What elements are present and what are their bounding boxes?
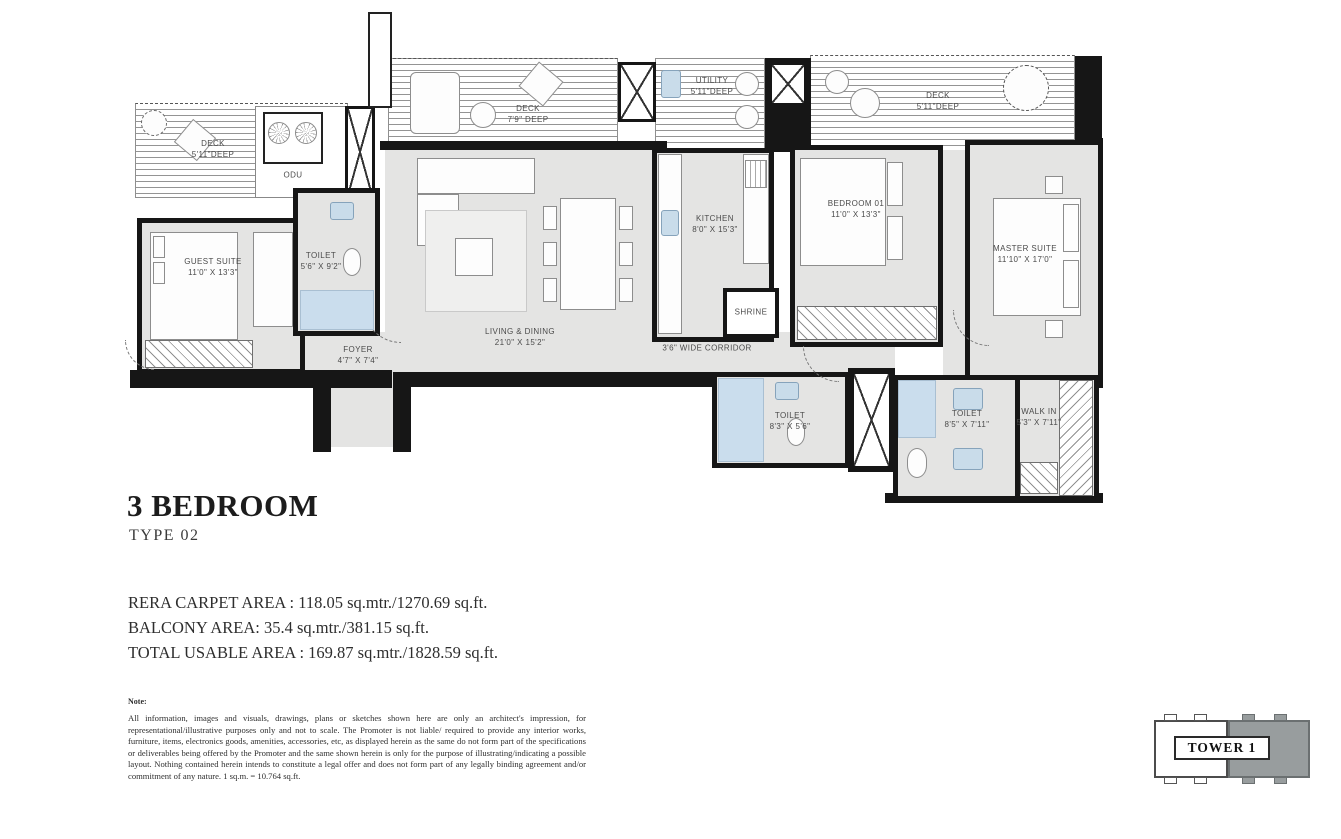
room-label-corridor: 3'6" WIDE CORRIDOR: [662, 344, 751, 355]
duct-projection: [368, 12, 392, 108]
room-label-toilet-master: TOILET8'5" X 7'11": [945, 409, 990, 431]
room-label-kitchen: KITCHEN8'0" X 15'3": [692, 214, 738, 236]
room-label-shrine: SHRINE: [735, 308, 768, 319]
plant-icon: [141, 110, 167, 136]
chair-icon: [619, 278, 633, 302]
keyplan-notch: [1242, 714, 1255, 721]
odu-fan-icon: [268, 122, 290, 144]
pillow-icon: [887, 216, 903, 260]
room-label-foyer: FOYER4'7" X 7'4": [338, 345, 379, 367]
shaft-icon: [345, 106, 375, 198]
room-label-master-suite: MASTER SUITE11'10" X 17'0": [993, 244, 1057, 266]
wall: [409, 372, 714, 387]
utility-sink-icon: [661, 70, 681, 98]
room-label-living-dining: LIVING & DINING21'0" X 15'2": [485, 327, 555, 349]
door-arc: [125, 340, 155, 370]
pillow-icon: [153, 262, 165, 284]
room-label-bedroom-01: BEDROOM 0111'0" X 13'3": [828, 199, 884, 221]
keyplan-notch: [1242, 777, 1255, 784]
toilet-icon: [343, 248, 361, 276]
chair-icon: [543, 278, 557, 302]
keyplan-notch: [1194, 777, 1207, 784]
room-label-utility: UTILITY5'11"DEEP: [691, 76, 734, 98]
room-label-deck-right: DECK5'11"DEEP: [917, 91, 960, 113]
sofa-icon: [417, 158, 535, 194]
room-label-toilet-guest: TOILET5'6" X 9'2": [301, 251, 342, 273]
page-subtitle: TYPE 02: [129, 527, 200, 545]
dresser-icon: [253, 232, 293, 327]
plant-icon: [1003, 65, 1049, 111]
keyplan-notch: [1274, 777, 1287, 784]
sink-icon: [953, 448, 983, 470]
rera-carpet-area: RERA CARPET AREA : 118.05 sq.mtr./1270.6…: [128, 590, 498, 615]
closet-shelves-icon: [1059, 380, 1093, 496]
wall: [313, 372, 331, 452]
deck-chair-icon: [825, 70, 849, 94]
deck-table-icon: [850, 88, 880, 118]
washer-icon: [735, 72, 759, 96]
page-title: 3 BEDROOM: [127, 488, 318, 524]
shower-area: [718, 378, 764, 462]
nightstand-icon: [1045, 320, 1063, 338]
kitchen-sink-icon: [661, 210, 679, 236]
keyplan-notch: [1194, 714, 1207, 721]
room-label-toilet-common: TOILET8'3" X 5'6": [770, 411, 811, 433]
hob-icon: [745, 160, 767, 188]
shaft-icon: [848, 368, 895, 472]
wardrobe-icon: [145, 340, 253, 368]
wardrobe-icon: [797, 306, 937, 340]
tower-keyplan: TOWER 1: [1152, 710, 1317, 790]
keyplan-notch: [1164, 777, 1177, 784]
nightstand-icon: [1045, 176, 1063, 194]
tower-label: TOWER 1: [1174, 736, 1270, 760]
toilet-icon: [907, 448, 927, 478]
note-label: Note:: [128, 697, 147, 706]
floor-plan-page: DECK5'11"DEEP ODU DECK7'9" DEEP UTILITY5…: [0, 0, 1341, 839]
shower-area: [300, 290, 374, 330]
disclaimer-text: All information, images and visuals, dra…: [128, 713, 586, 782]
chair-icon: [543, 242, 557, 266]
room-label-guest-suite: GUEST SUITE11'0" X 13'3": [184, 257, 242, 279]
washer-icon: [735, 105, 759, 129]
room-label-deck-center: DECK7'9" DEEP: [508, 104, 549, 126]
coffee-table-icon: [455, 238, 493, 276]
keyplan-notch: [1164, 714, 1177, 721]
sink-icon: [330, 202, 354, 220]
area-statement: RERA CARPET AREA : 118.05 sq.mtr./1270.6…: [128, 590, 498, 665]
sink-icon: [953, 388, 983, 410]
shaft-icon: [618, 62, 656, 122]
dining-table-icon: [560, 198, 616, 310]
balcony-area: BALCONY AREA: 35.4 sq.mtr./381.15 sq.ft.: [128, 615, 498, 640]
lounger-icon: [410, 72, 460, 134]
closet-bench-icon: [1020, 462, 1058, 494]
wall: [380, 141, 667, 150]
pillow-icon: [153, 236, 165, 258]
shower-area: [898, 380, 936, 438]
sink-icon: [775, 382, 799, 400]
room-label-odu: ODU: [284, 171, 303, 182]
keyplan-notch: [1274, 714, 1287, 721]
pillow-icon: [1063, 260, 1079, 308]
floor-plan: DECK5'11"DEEP ODU DECK7'9" DEEP UTILITY5…: [125, 10, 1125, 505]
deck-table-icon: [470, 102, 496, 128]
chair-icon: [543, 206, 557, 230]
chair-icon: [619, 242, 633, 266]
pillow-icon: [887, 162, 903, 206]
chair-icon: [619, 206, 633, 230]
pillow-icon: [1063, 204, 1079, 252]
room-label-walk-in: WALK IN5'3" X 7'11": [1017, 407, 1062, 429]
odu-fan-icon: [295, 122, 317, 144]
shaft-icon: [770, 63, 806, 105]
total-usable-area: TOTAL USABLE AREA : 169.87 sq.mtr./1828.…: [128, 640, 498, 665]
room-label-deck-left: DECK5'11"DEEP: [192, 139, 235, 161]
kitchen-counter: [658, 154, 682, 334]
